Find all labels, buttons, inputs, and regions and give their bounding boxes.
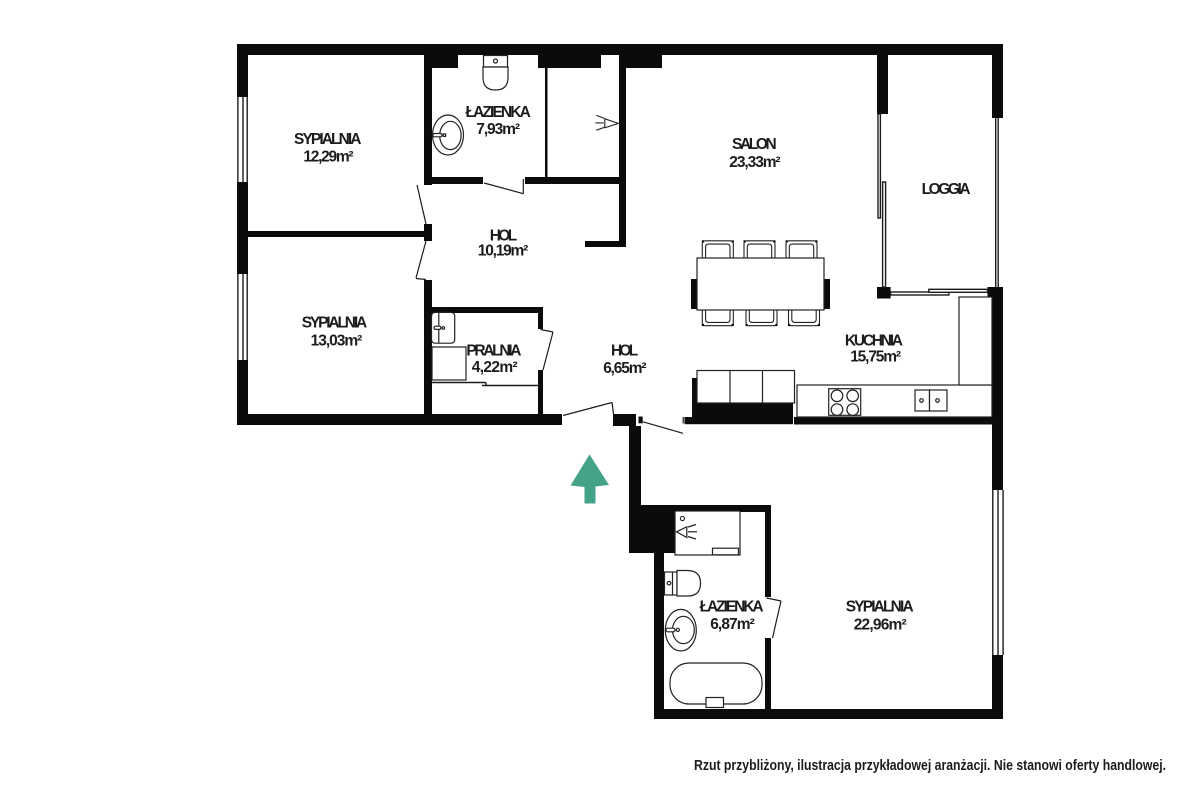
svg-text:10,19m²: 10,19m²: [478, 243, 529, 260]
svg-text:ŁAZIENKA: ŁAZIENKA: [466, 104, 531, 121]
svg-text:PRALNIA: PRALNIA: [466, 343, 521, 360]
svg-text:15,75m²: 15,75m²: [850, 349, 901, 366]
svg-text:HOL: HOL: [611, 343, 638, 360]
svg-text:SALON: SALON: [732, 136, 777, 153]
svg-text:13,03m²: 13,03m²: [311, 332, 363, 349]
svg-text:ŁAZIENKA: ŁAZIENKA: [700, 599, 764, 616]
svg-text:KUCHNIA: KUCHNIA: [845, 333, 903, 350]
svg-text:SYPIALNIA: SYPIALNIA: [846, 599, 914, 616]
svg-text:6,87m²: 6,87m²: [710, 616, 755, 633]
svg-text:23,33m²: 23,33m²: [729, 154, 780, 171]
svg-text:SYPIALNIA: SYPIALNIA: [294, 131, 362, 148]
svg-text:22,96m²: 22,96m²: [854, 617, 907, 634]
svg-text:SYPIALNIA: SYPIALNIA: [302, 315, 368, 332]
svg-text:6,65m²: 6,65m²: [603, 360, 646, 377]
svg-text:Rzut przybliżony, ilustracja p: Rzut przybliżony, ilustracja przykładowe…: [694, 758, 1166, 774]
svg-text:LOGGIA: LOGGIA: [922, 181, 971, 198]
svg-text:12,29m²: 12,29m²: [303, 149, 353, 166]
svg-text:7,93m²: 7,93m²: [476, 121, 520, 138]
svg-text:4,22m²: 4,22m²: [472, 359, 518, 376]
